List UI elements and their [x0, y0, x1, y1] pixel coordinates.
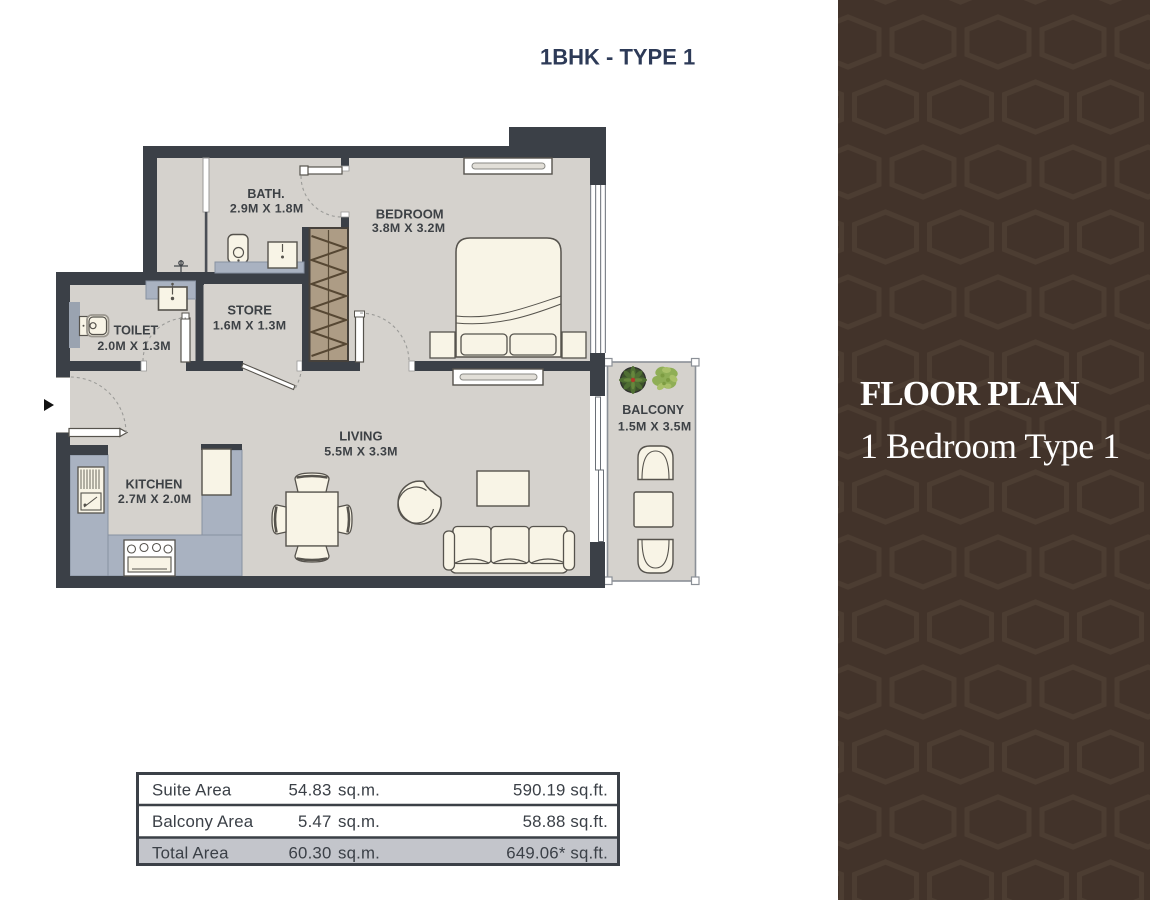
svg-text:1.6M X 1.3M: 1.6M X 1.3M	[213, 319, 287, 333]
svg-text:sq.m.: sq.m.	[338, 812, 380, 831]
svg-text:BALCONY: BALCONY	[622, 403, 684, 417]
svg-text:590.19 sq.ft.: 590.19 sq.ft.	[513, 781, 608, 800]
svg-text:5.47: 5.47	[298, 812, 331, 831]
svg-text:2.9M X 1.8M: 2.9M X 1.8M	[230, 202, 304, 216]
svg-text:BEDROOM: BEDROOM	[376, 206, 444, 221]
svg-text:2.0M X 1.3M: 2.0M X 1.3M	[97, 339, 171, 353]
svg-text:STORE: STORE	[227, 303, 272, 318]
svg-text:2.7M X 2.0M: 2.7M X 2.0M	[118, 492, 192, 506]
svg-text:Balcony Area: Balcony Area	[152, 812, 254, 831]
svg-text:5.5M X 3.3M: 5.5M X 3.3M	[324, 445, 398, 459]
svg-text:3.8M X 3.2M: 3.8M X 3.2M	[372, 221, 446, 235]
svg-text:KITCHEN: KITCHEN	[125, 477, 182, 492]
svg-text:sq.m.: sq.m.	[338, 844, 380, 863]
svg-text:TOILET: TOILET	[114, 324, 159, 338]
svg-text:1BHK - TYPE 1: 1BHK - TYPE 1	[540, 45, 695, 70]
svg-text:1.5M X 3.5M: 1.5M X 3.5M	[618, 419, 692, 433]
svg-text:Total Area: Total Area	[152, 844, 229, 863]
svg-text:60.30: 60.30	[289, 844, 332, 863]
svg-text:LIVING: LIVING	[339, 429, 382, 444]
svg-text:58.88 sq.ft.: 58.88 sq.ft.	[523, 812, 608, 831]
svg-text:54.83: 54.83	[289, 781, 332, 800]
svg-text:BATH.: BATH.	[247, 187, 284, 201]
svg-text:Suite Area: Suite Area	[152, 781, 232, 800]
svg-text:sq.m.: sq.m.	[338, 781, 380, 800]
svg-text:649.06* sq.ft.: 649.06* sq.ft.	[506, 844, 608, 863]
svg-text:FLOOR PLAN: FLOOR PLAN	[860, 374, 1079, 413]
svg-text:1 Bedroom Type 1: 1 Bedroom Type 1	[860, 426, 1120, 466]
